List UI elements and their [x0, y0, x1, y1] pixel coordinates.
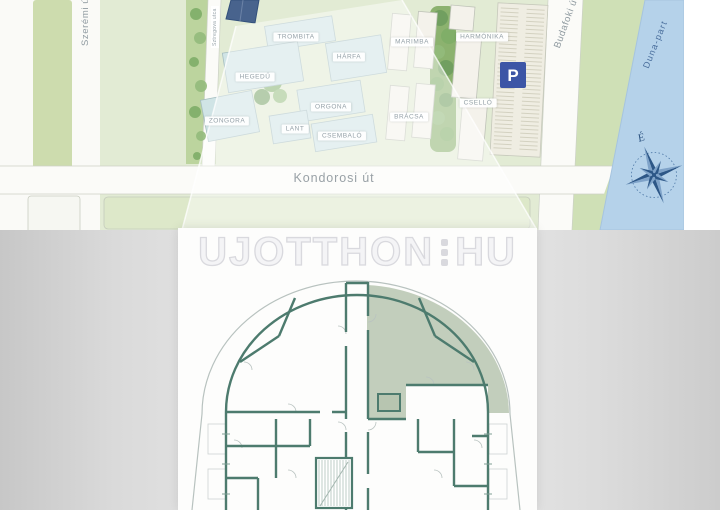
watermark-name: UJOTTHON: [198, 232, 434, 272]
street-label-kondorosi: Kondorosi út: [294, 171, 375, 185]
floor-plan-card: UJOTTHON HU: [178, 228, 537, 510]
building-label-marimba: MARIMBA: [391, 38, 433, 47]
parking-icon: P: [500, 62, 526, 88]
building-label-harfa: HÁRFA: [333, 53, 365, 62]
site-plan-map: P É: [0, 0, 720, 230]
building-label-csello: CSELLÓ: [460, 99, 497, 108]
building-label-hegedu: HEGEDŰ: [236, 73, 275, 82]
building-label-lant: LANT: [282, 125, 309, 134]
watermark-tld: HU: [455, 232, 517, 272]
south-block-west: [28, 196, 80, 230]
listing-image: P É: [0, 0, 720, 510]
selected-building[interactable]: [226, 0, 259, 23]
building-label-trombita: TROMBITA: [273, 33, 318, 42]
floor-plan-section: UJOTTHON HU: [0, 230, 720, 510]
building-label-bracsa: BRÁCSA: [390, 113, 428, 122]
watermark-logo: UJOTTHON HU: [178, 232, 537, 272]
building-label-harmonika: HARMÓNIKA: [456, 33, 508, 42]
street-label-szeremi: Szerémi út: [80, 0, 91, 46]
street-label-sztregova: Sztregova utca: [211, 6, 219, 48]
site-map-graphic: P É: [0, 0, 720, 230]
window-ticks: [222, 434, 492, 494]
svg-text:P: P: [507, 66, 518, 85]
right-margin: [684, 0, 720, 230]
building-label-csembalo: CSEMBALÓ: [318, 132, 366, 141]
median-strip: [33, 0, 72, 172]
building-label-zongora: ZONGORA: [205, 117, 249, 126]
elevator: [378, 394, 400, 411]
building-label-orgona: ORGONA: [311, 103, 351, 112]
floor-plan: [178, 274, 537, 510]
staircase: [316, 458, 352, 508]
balconies: [208, 424, 507, 499]
plan-outer-outline: [192, 281, 520, 510]
watermark-dots-icon: [441, 239, 448, 266]
